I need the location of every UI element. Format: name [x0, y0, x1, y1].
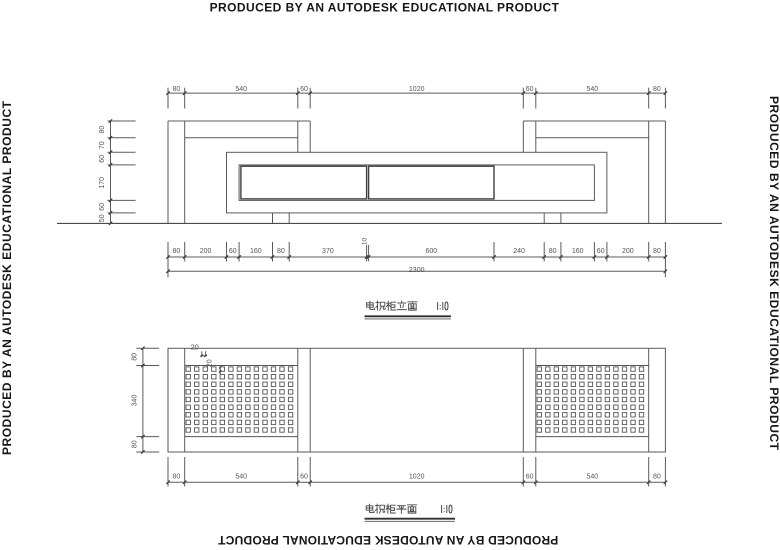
svg-text:50: 50	[99, 214, 106, 222]
svg-text:80: 80	[173, 474, 181, 481]
svg-text:60: 60	[526, 474, 534, 481]
svg-text:200: 200	[622, 248, 634, 255]
svg-text:60: 60	[229, 248, 237, 255]
svg-text:1020: 1020	[409, 86, 425, 93]
svg-text:540: 540	[586, 474, 598, 481]
svg-text:80: 80	[173, 86, 181, 93]
svg-text:160: 160	[572, 248, 584, 255]
svg-text:60: 60	[300, 86, 308, 93]
svg-text:60: 60	[597, 248, 605, 255]
svg-text:80: 80	[173, 248, 181, 255]
svg-text:20: 20	[191, 343, 199, 352]
svg-text:340: 340	[132, 395, 139, 407]
svg-text:2300: 2300	[409, 267, 425, 274]
svg-text:540: 540	[235, 474, 247, 481]
svg-text:240: 240	[513, 248, 525, 255]
svg-text:200: 200	[200, 248, 212, 255]
svg-text:80: 80	[132, 440, 139, 448]
svg-text:80: 80	[653, 248, 661, 255]
svg-text:80: 80	[653, 86, 661, 93]
svg-text:370: 370	[322, 248, 334, 255]
svg-text:20: 20	[206, 359, 213, 367]
svg-text:600: 600	[425, 248, 437, 255]
svg-text:160: 160	[250, 248, 262, 255]
svg-text:70: 70	[99, 141, 106, 149]
svg-text:80: 80	[99, 126, 106, 134]
svg-text:10: 10	[362, 238, 369, 246]
svg-text:60: 60	[526, 86, 534, 93]
svg-text:60: 60	[99, 203, 106, 211]
svg-text:80: 80	[277, 248, 285, 255]
svg-text:80: 80	[549, 248, 557, 255]
svg-text:60: 60	[99, 155, 106, 163]
svg-text:60: 60	[300, 474, 308, 481]
svg-text:80: 80	[653, 474, 661, 481]
svg-text:540: 540	[586, 86, 598, 93]
svg-text:540: 540	[235, 86, 247, 93]
svg-text:170: 170	[99, 177, 106, 189]
svg-text:80: 80	[132, 353, 139, 361]
svg-text:1020: 1020	[409, 474, 425, 481]
